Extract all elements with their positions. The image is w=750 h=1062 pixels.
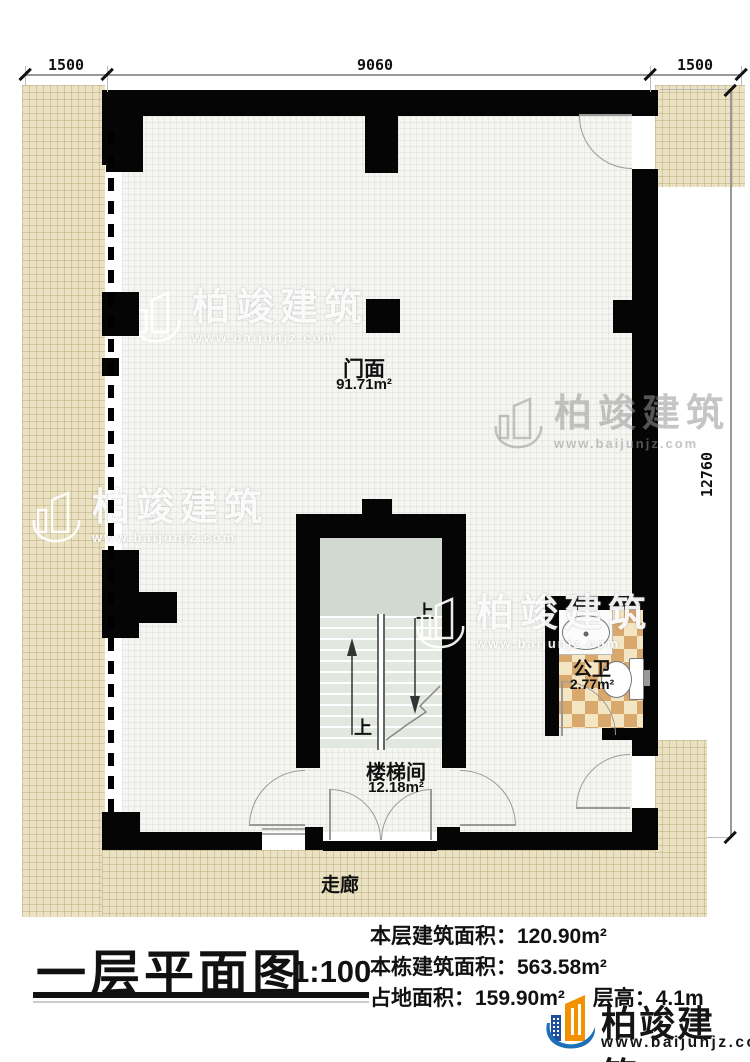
stat-label: 本栋建筑面积： xyxy=(370,956,517,979)
door-leaf xyxy=(249,824,305,826)
wall-column xyxy=(365,116,398,173)
corridor-left-strip xyxy=(22,85,105,917)
corridor-top-right-patch xyxy=(655,85,745,187)
stat-floor-area: 本层建筑面积：120.90m² xyxy=(370,920,607,950)
wall-corner-top-left xyxy=(102,90,143,135)
corridor-label: 走廊 xyxy=(321,870,359,897)
storefront-area: 91.71m² xyxy=(336,376,392,393)
door-leaf xyxy=(576,807,630,809)
dim-right-total: 12760 xyxy=(698,452,716,497)
brand-logo-icon xyxy=(541,991,599,1053)
door-leaf xyxy=(561,681,563,736)
wall-wing xyxy=(139,592,177,623)
door-leaf xyxy=(460,824,516,826)
title-underline xyxy=(33,992,369,998)
extension-line xyxy=(25,66,26,86)
wall-top xyxy=(106,90,658,116)
stair-wall-bump xyxy=(362,499,392,514)
dim-top-center: 9060 xyxy=(357,56,393,74)
door-leaf xyxy=(430,789,432,840)
stat-label: 占地面积： xyxy=(370,987,475,1010)
stat-label: 本层建筑面积： xyxy=(370,925,517,948)
bathroom-wall-top xyxy=(545,596,643,610)
plan-scale: 1:100 xyxy=(292,954,371,990)
corridor-bottom-right-patch xyxy=(655,740,707,855)
stair-up-label-top: 上 xyxy=(416,598,434,624)
floor-plan-canvas: 柏竣建筑 www.baijunjz.com 柏竣建筑 www.baijunjz.… xyxy=(0,0,750,1062)
stat-building-area: 本栋建筑面积：563.58m² xyxy=(370,951,607,981)
brand-logo-url: www.baijunjz.com xyxy=(601,1034,750,1052)
wall-bottom-right xyxy=(437,832,658,850)
toilet-area: 2.77m² xyxy=(570,676,614,692)
extension-line xyxy=(660,89,730,90)
dim-top-right: 1500 xyxy=(677,56,713,74)
dim-top-left: 1500 xyxy=(48,56,84,74)
stair-wall-top xyxy=(296,514,466,538)
wall-column-center xyxy=(366,299,400,333)
dimension-line-right xyxy=(730,90,732,838)
wall-right-bathroom xyxy=(643,596,658,736)
title-underline-thin xyxy=(33,1001,369,1003)
corridor-bottom-strip xyxy=(102,850,707,917)
extension-line xyxy=(741,66,742,86)
storefront-glass-dashed-line xyxy=(108,132,114,816)
dimension-line-top xyxy=(25,74,742,76)
wall-right xyxy=(632,169,658,600)
wall-corner-top-right xyxy=(632,90,658,116)
sink-icon xyxy=(562,615,610,650)
door-leaf xyxy=(579,114,632,116)
stair-up-label-bottom: 上 xyxy=(354,714,372,740)
entrance-threshold xyxy=(323,841,437,851)
wall-column xyxy=(613,300,632,333)
stairwell-area: 12.18m² xyxy=(368,779,424,796)
toilet-flush-icon xyxy=(644,670,650,686)
stat-value: 563.58m² xyxy=(517,956,607,979)
bathroom-wall-left xyxy=(545,610,559,736)
wall-bottom-left xyxy=(102,832,262,850)
door-leaf xyxy=(329,789,331,840)
stat-value: 120.90m² xyxy=(517,925,607,948)
